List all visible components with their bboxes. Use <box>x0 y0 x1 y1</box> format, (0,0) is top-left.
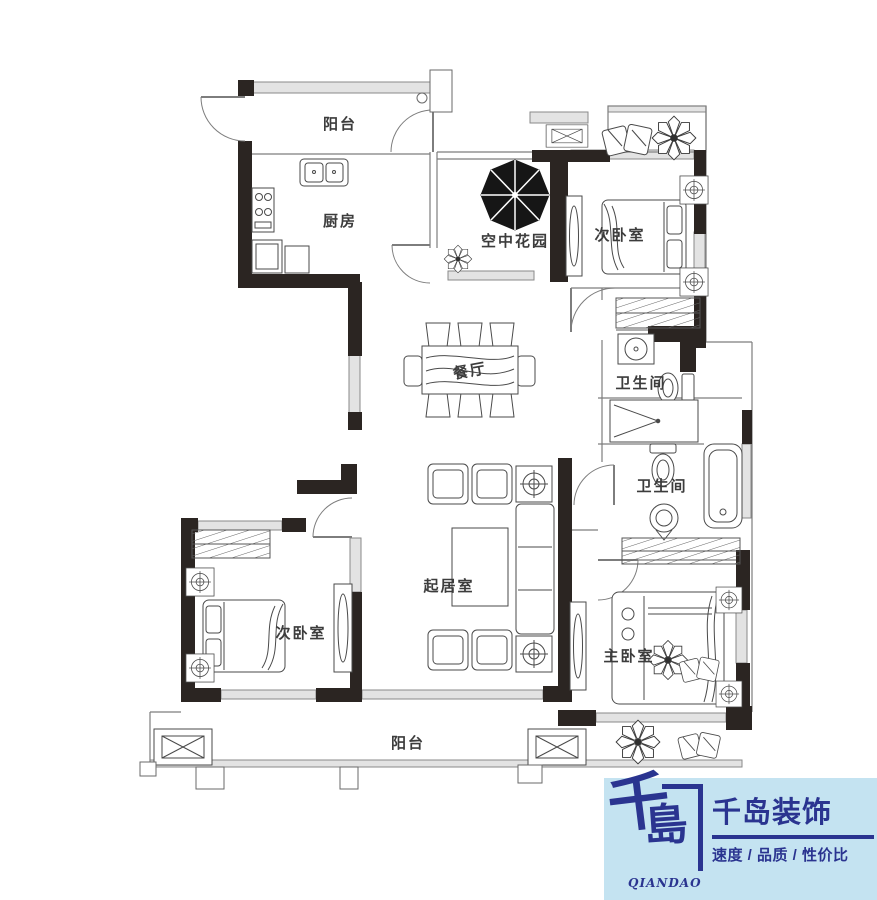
sky-garden-tree <box>444 160 549 273</box>
room-label-kitchen: 厨房 <box>323 212 357 230</box>
room-label-sky-garden: 空中花园 <box>481 232 549 250</box>
master-bedroom-furniture <box>570 587 742 707</box>
room-label-living: 起居室 <box>422 577 474 595</box>
logo-divider-rule <box>712 835 874 839</box>
room-label-master-bedroom: 主卧室 <box>603 647 654 665</box>
bedroom-bottom-left-furniture <box>186 568 352 682</box>
room-label-balcony-bottom: 阳台 <box>391 734 425 752</box>
living-room-furniture <box>428 464 554 672</box>
room-label-balcony-top: 阳台 <box>323 115 357 133</box>
room-label-bath-lower: 卫生间 <box>636 477 687 495</box>
company-logo: 千 島 QIANDAO 千岛装饰 速度 / 品质 / 性价比 <box>604 778 877 900</box>
company-tagline: 速度 / 品质 / 性价比 <box>712 844 874 865</box>
company-name: 千岛装饰 <box>712 798 874 830</box>
room-label-bedroom2-bottom: 次卧室 <box>275 624 326 642</box>
logo-calligraphy-mark: 千 島 QIANDAO <box>604 778 712 900</box>
sofa <box>516 504 554 634</box>
vanity <box>610 400 698 442</box>
garden-flower <box>444 245 472 273</box>
floor-plan-page: 阳台 厨房 空中花园 次卧室 卫生间 餐厅 卫生间 起居室 次卧室 主卧室 阳台… <box>0 0 877 900</box>
logo-roman-name: QIANDAO <box>628 876 702 890</box>
floor-plan-drawing: 阳台 厨房 空中花园 次卧室 卫生间 餐厅 卫生间 起居室 次卧室 主卧室 阳台 <box>0 0 877 900</box>
room-label-bath-upper: 卫生间 <box>615 374 666 392</box>
logo-text-block: 千岛装饰 速度 / 品质 / 性价比 <box>712 798 874 865</box>
room-label-bedroom2-top: 次卧室 <box>594 226 645 244</box>
logo-mark-char-bottom: 島 <box>643 803 690 850</box>
